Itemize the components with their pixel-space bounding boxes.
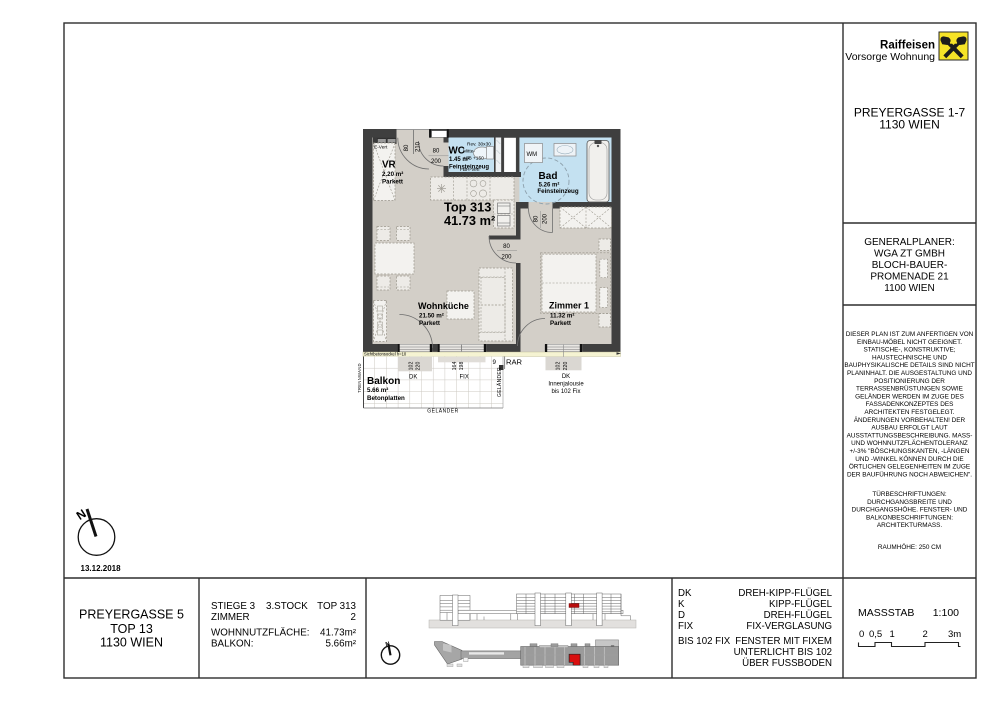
svg-text:DK: DK [562, 374, 570, 380]
svg-text:RAR: RAR [506, 358, 523, 367]
svg-text:41.73 m²: 41.73 m² [444, 213, 495, 228]
svg-text:80: 80 [404, 144, 410, 151]
svg-text:WGA ZT GMBH: WGA ZT GMBH [874, 249, 945, 260]
svg-text:E-Vert: E-Vert [374, 145, 388, 151]
svg-text:41.73m²: 41.73m² [320, 628, 357, 639]
svg-text:210: 210 [416, 141, 422, 152]
svg-text:UNTERLICHT BIS 102: UNTERLICHT BIS 102 [734, 647, 832, 658]
svg-text:DURCHGANGSHÖHE. FENSTER- UND: DURCHGANGSHÖHE. FENSTER- UND [852, 506, 968, 514]
svg-text:FBH-Verl: FBH-Verl [460, 167, 479, 173]
svg-text:RAUMHÖHE: 250 CM: RAUMHÖHE: 250 CM [878, 543, 941, 551]
svg-text:DURCHGANGSBREITE UND: DURCHGANGSBREITE UND [867, 499, 952, 506]
svg-text:Bad: Bad [539, 171, 558, 182]
svg-text:HAUSTECHNISCHE UND: HAUSTECHNISCHE UND [872, 354, 947, 361]
svg-text:STIEGE 3: STIEGE 3 [211, 601, 256, 612]
svg-text:FENSTER MIT FIXEM: FENSTER MIT FIXEM [735, 636, 832, 647]
svg-text:1:100: 1:100 [933, 607, 959, 619]
svg-text:Rev. 30x30: Rev. 30x30 [467, 142, 491, 148]
svg-text:K: K [678, 599, 685, 610]
svg-text:80: 80 [503, 244, 510, 250]
svg-text:DK: DK [409, 375, 417, 381]
svg-text:ZIMMER: ZIMMER [211, 612, 250, 623]
svg-text:2.20 m²: 2.20 m² [382, 171, 403, 178]
svg-text:Parkett: Parkett [419, 320, 440, 327]
svg-text:5.66m²: 5.66m² [326, 639, 357, 650]
svg-text:+2B +150: +2B +150 [463, 156, 484, 162]
svg-text:ARCHITEKTEN FESTGELEGT.: ARCHITEKTEN FESTGELEGT. [864, 409, 954, 416]
svg-text:TRENNWAND: TRENNWAND [357, 363, 362, 393]
svg-text:ÖRTLICHEN GELEGENHEITEN IM ZUG: ÖRTLICHEN GELEGENHEITEN IM ZUGE [849, 463, 970, 471]
svg-text:FIX-VERGLASUNG: FIX-VERGLASUNG [746, 621, 832, 632]
svg-text:5.66 m²: 5.66 m² [367, 387, 388, 394]
svg-text:Sichtbetonsockel h=10: Sichtbetonsockel h=10 [364, 352, 407, 357]
svg-text:FASSADENKONZEPTES DES: FASSADENKONZEPTES DES [866, 401, 954, 408]
svg-text:PROMENADE 21: PROMENADE 21 [870, 272, 949, 283]
svg-text:BALKONBESCHRIFTUNGEN:: BALKONBESCHRIFTUNGEN: [866, 514, 953, 521]
svg-text:164: 164 [452, 362, 458, 371]
svg-text:200: 200 [543, 213, 549, 224]
svg-text:1130 WIEN: 1130 WIEN [879, 118, 939, 132]
svg-text:21.50 m²: 21.50 m² [419, 313, 444, 320]
svg-text:2: 2 [923, 629, 928, 640]
svg-text:UND -WINKEL KÖNNEN DURCH DIE: UND -WINKEL KÖNNEN DURCH DIE [855, 455, 963, 463]
svg-text:1: 1 [890, 629, 895, 640]
svg-text:Feinsteinzeug: Feinsteinzeug [537, 188, 578, 195]
svg-text:ARCHITEKTURMASS.: ARCHITEKTURMASS. [877, 522, 943, 529]
svg-text:DIESER PLAN IST ZUM ANFERTIGEN: DIESER PLAN IST ZUM ANFERTIGEN VON [846, 331, 974, 338]
svg-text:DK: DK [678, 588, 692, 599]
svg-text:198: 198 [459, 362, 465, 371]
svg-text:2: 2 [351, 612, 356, 623]
svg-text:Betonplatten: Betonplatten [367, 395, 405, 402]
svg-text:3.STOCK: 3.STOCK [266, 601, 308, 612]
svg-text:200: 200 [501, 255, 512, 261]
svg-text:Mitte-: Mitte- [463, 149, 475, 155]
svg-text:+/-3% "BÖSCHUNGSKANTEN, -LÄNGE: +/-3% "BÖSCHUNGSKANTEN, -LÄNGEN [850, 447, 970, 455]
svg-text:GENERALPLANER:: GENERALPLANER: [864, 237, 955, 248]
svg-text:13.12.2018: 13.12.2018 [81, 564, 122, 573]
svg-text:DREH-KIPP-FLÜGEL: DREH-KIPP-FLÜGEL [738, 588, 832, 599]
svg-text:BIS 102 FIX: BIS 102 FIX [678, 636, 731, 647]
svg-text:Zimmer 1: Zimmer 1 [549, 301, 589, 311]
svg-text:Vorsorge Wohnung: Vorsorge Wohnung [845, 51, 935, 63]
svg-text:102: 102 [409, 362, 415, 371]
svg-text:Raiffeisen: Raiffeisen [880, 40, 935, 52]
svg-text:220: 220 [563, 362, 569, 371]
svg-text:0,5: 0,5 [869, 629, 882, 640]
svg-text:220: 220 [416, 362, 422, 371]
svg-text:GELÄNDER: GELÄNDER [496, 367, 503, 397]
svg-text:AUSBAU ERFOLGT LAUT: AUSBAU ERFOLGT LAUT [871, 425, 947, 432]
svg-text:PREYERGASSE 5: PREYERGASSE 5 [79, 608, 184, 622]
svg-text:BLOCH-BAUER-: BLOCH-BAUER- [872, 260, 948, 271]
svg-text:PLANINHALT. DIE AUSGESTALTUNG: PLANINHALT. DIE AUSGESTALTUNG UND [847, 370, 972, 377]
svg-text:STATISCHE-, KONSTRUKTIVE;: STATISCHE-, KONSTRUKTIVE; [863, 347, 955, 354]
svg-text:POSITIONIERUNG DER: POSITIONIERUNG DER [874, 378, 945, 385]
svg-text:Parkett: Parkett [382, 179, 403, 186]
svg-text:Parkett: Parkett [550, 320, 571, 327]
svg-text:TÜRBESCHRIFTUNGEN:: TÜRBESCHRIFTUNGEN: [872, 490, 946, 498]
svg-text:Wohnküche: Wohnküche [418, 301, 469, 311]
svg-text:KIPP-FLÜGEL: KIPP-FLÜGEL [769, 599, 833, 610]
svg-text:TERRASSENBRÜSTUNGEN SOWIE: TERRASSENBRÜSTUNGEN SOWIE [856, 385, 963, 393]
svg-text:ÜBER FUSSBODEN: ÜBER FUSSBODEN [742, 658, 832, 669]
svg-text:WOHNNUTZFLÄCHE:: WOHNNUTZFLÄCHE: [211, 628, 310, 639]
svg-text:DER BAUFÜHRUNG NOCH ABWEICHEN": DER BAUFÜHRUNG NOCH ABWEICHEN". [847, 470, 972, 478]
svg-text:9: 9 [493, 359, 497, 366]
svg-text:GELÄNDER: GELÄNDER [427, 408, 459, 415]
svg-text:TOP 313: TOP 313 [317, 601, 356, 612]
svg-text:DREH-FLÜGEL: DREH-FLÜGEL [764, 610, 833, 621]
svg-text:MASSSTAB: MASSSTAB [858, 607, 914, 619]
svg-text:FIX: FIX [460, 375, 469, 381]
svg-text:BALKON:: BALKON: [211, 639, 253, 650]
svg-text:D: D [678, 610, 685, 621]
svg-text:0: 0 [859, 629, 864, 640]
svg-text:1130 WIEN: 1130 WIEN [100, 636, 163, 650]
svg-text:bis 102 Fix: bis 102 Fix [551, 389, 580, 395]
svg-text:80: 80 [534, 215, 540, 222]
svg-text:Innenjalousie: Innenjalousie [548, 382, 584, 388]
svg-text:AUSSTATTUNGSBESCHREIBUNG. MASS: AUSSTATTUNGSBESCHREIBUNG. MASS- [847, 432, 973, 439]
svg-text:BAUPHYSIKALISCHE DETAILS SIND: BAUPHYSIKALISCHE DETAILS SIND NICHT [844, 362, 974, 369]
svg-text:3m: 3m [948, 629, 961, 640]
svg-text:WM: WM [527, 152, 538, 158]
svg-text:FIX: FIX [678, 621, 694, 632]
svg-text:ÄNDERUNGEN VORBEHALTEN! DER: ÄNDERUNGEN VORBEHALTEN! DER [854, 416, 966, 424]
svg-text:TOP 13: TOP 13 [110, 622, 153, 636]
svg-text:102: 102 [556, 362, 562, 371]
svg-text:Balkon: Balkon [367, 376, 400, 387]
svg-text:200: 200 [431, 159, 442, 165]
svg-text:1100 WIEN: 1100 WIEN [884, 283, 934, 294]
svg-text:11.32 m²: 11.32 m² [550, 313, 574, 320]
svg-text:VR: VR [382, 160, 396, 171]
svg-text:80: 80 [433, 149, 440, 155]
svg-text:UND WOHNNUTZFLÄCHENTOLERANZ: UND WOHNNUTZFLÄCHENTOLERANZ [851, 439, 968, 447]
svg-text:GELÄNDER WERDEN IM ZUGE DES: GELÄNDER WERDEN IM ZUGE DES [855, 392, 964, 400]
svg-text:EINBAU-MÖBEL NICHT GEEIGNET.: EINBAU-MÖBEL NICHT GEEIGNET. [857, 338, 962, 346]
